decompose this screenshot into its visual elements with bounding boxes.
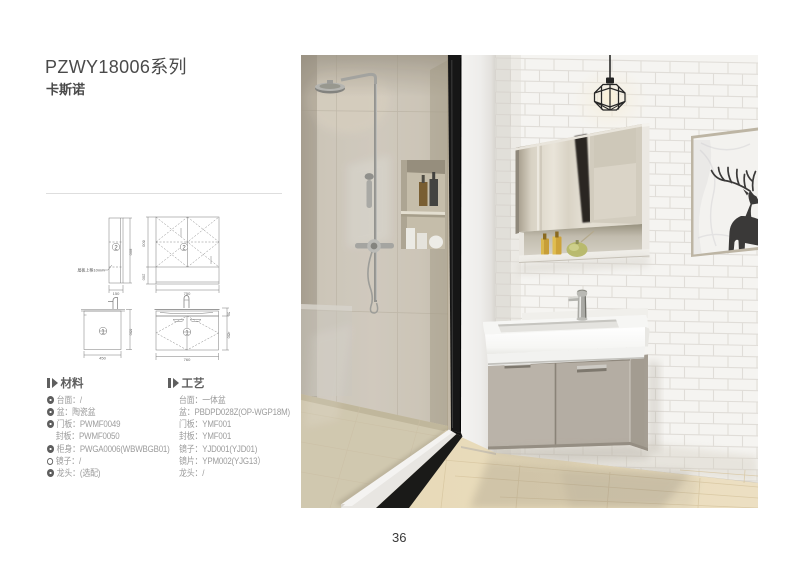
svg-text:450: 450 [99,356,106,361]
svg-text:50: 50 [227,312,231,316]
svg-text:150: 150 [113,291,120,296]
svg-text:600: 600 [142,240,147,247]
svg-text:800: 800 [129,249,134,256]
svg-text:650: 650 [129,329,134,336]
svg-text:760: 760 [184,357,191,362]
svg-text:450: 450 [227,332,232,339]
svg-text:750: 750 [184,291,191,296]
svg-text:层板上移10mm: 层板上移10mm [77,267,105,273]
svg-text:200: 200 [142,274,147,281]
